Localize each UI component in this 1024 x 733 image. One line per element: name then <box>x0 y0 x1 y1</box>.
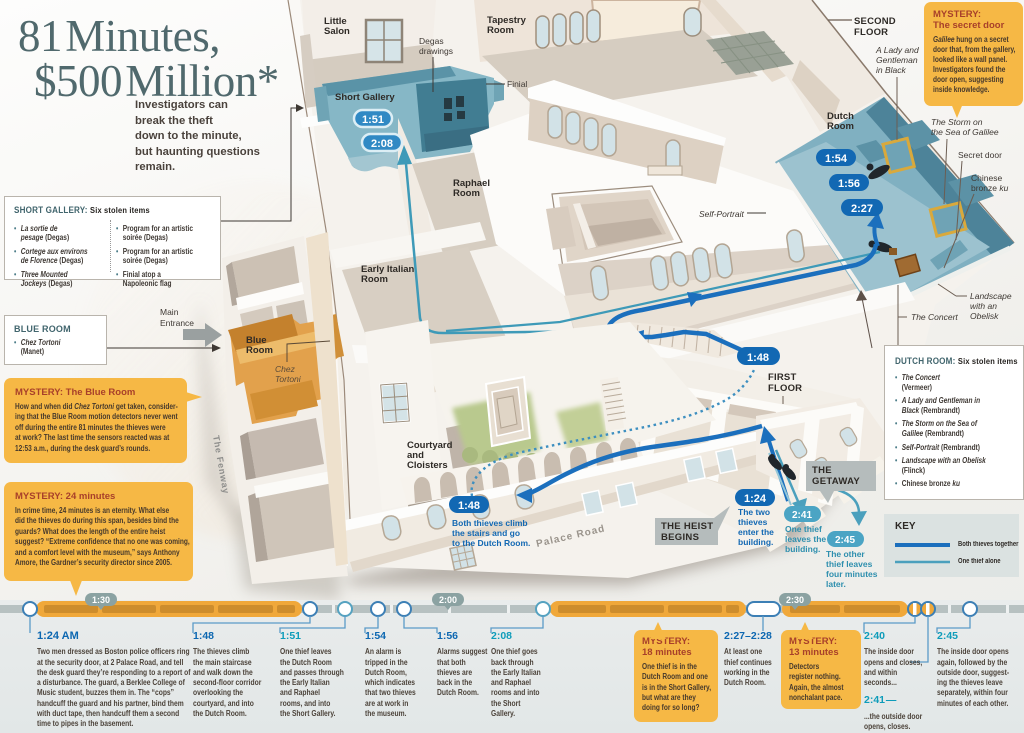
svg-text:Self-Portrait: Self-Portrait <box>699 209 745 219</box>
svg-text:Short Gallery: Short Gallery <box>335 92 395 103</box>
svg-text:Gentleman: Gentleman <box>876 55 918 65</box>
svg-text:The two: The two <box>738 507 770 517</box>
svg-text:Chez: Chez <box>275 364 296 374</box>
svg-text:SECOND: SECOND <box>854 16 896 27</box>
svg-text:1:30: 1:30 <box>92 595 110 605</box>
svg-text:leaves the: leaves the <box>785 534 826 544</box>
svg-text:Room: Room <box>453 188 480 199</box>
svg-text:FLOOR: FLOOR <box>768 383 802 394</box>
svg-text:GETAWAY: GETAWAY <box>812 476 860 487</box>
svg-text:Tortoni: Tortoni <box>275 374 302 384</box>
svg-text:A Lady and: A Lady and <box>875 45 919 55</box>
svg-text:The other: The other <box>826 549 865 559</box>
svg-text:THE: THE <box>812 465 832 476</box>
svg-text:1:51: 1:51 <box>362 114 384 126</box>
svg-text:four minutes: four minutes <box>826 569 878 579</box>
svg-text:FLOOR: FLOOR <box>854 27 888 38</box>
svg-text:Room: Room <box>361 274 388 285</box>
svg-text:THE HEIST: THE HEIST <box>661 521 713 532</box>
svg-text:bronze ku: bronze ku <box>971 183 1009 193</box>
svg-text:Both thieves climb: Both thieves climb <box>452 518 528 528</box>
svg-text:1:48: 1:48 <box>458 500 480 512</box>
svg-text:Secret door: Secret door <box>958 150 1002 160</box>
svg-text:1:48: 1:48 <box>747 352 769 364</box>
svg-text:2:27: 2:27 <box>851 203 873 215</box>
svg-text:Landscape: Landscape <box>970 291 1012 301</box>
svg-text:in Black: in Black <box>876 65 907 75</box>
svg-text:drawings: drawings <box>419 46 453 56</box>
svg-text:Room: Room <box>487 25 514 36</box>
svg-text:building.: building. <box>785 544 820 554</box>
svg-text:The Concert: The Concert <box>911 312 958 322</box>
svg-text:2:08: 2:08 <box>371 138 393 150</box>
svg-text:Chinese: Chinese <box>971 173 1002 183</box>
svg-text:1:54: 1:54 <box>825 153 848 165</box>
svg-text:One thief: One thief <box>785 524 822 534</box>
svg-text:the Sea of Galilee: the Sea of Galilee <box>931 127 999 137</box>
svg-text:Cloisters: Cloisters <box>407 460 448 471</box>
svg-text:2:30: 2:30 <box>786 595 804 605</box>
svg-text:Salon: Salon <box>324 26 350 37</box>
svg-text:building.: building. <box>738 537 773 547</box>
svg-text:Room: Room <box>827 121 854 132</box>
svg-text:enter the: enter the <box>738 527 774 537</box>
svg-text:Main: Main <box>160 307 179 317</box>
svg-text:thief leaves: thief leaves <box>826 559 873 569</box>
svg-text:2:45: 2:45 <box>835 535 855 546</box>
svg-text:1:24: 1:24 <box>744 493 767 505</box>
svg-text:1:56: 1:56 <box>838 178 860 190</box>
svg-text:thieves: thieves <box>738 517 768 527</box>
svg-text:FIRST: FIRST <box>768 372 796 383</box>
svg-text:to the Dutch Room.: to the Dutch Room. <box>452 538 530 548</box>
svg-text:2:41: 2:41 <box>792 510 812 521</box>
svg-text:the stairs and go: the stairs and go <box>452 528 520 538</box>
svg-text:Finial: Finial <box>507 79 527 89</box>
svg-text:Room: Room <box>246 345 273 356</box>
svg-text:Entrance: Entrance <box>160 318 194 328</box>
svg-text:Degas: Degas <box>419 36 444 46</box>
svg-text:BEGINS: BEGINS <box>661 532 699 543</box>
svg-text:2:00: 2:00 <box>439 595 457 605</box>
svg-text:with an: with an <box>970 301 997 311</box>
svg-text:Obelisk: Obelisk <box>970 311 999 321</box>
